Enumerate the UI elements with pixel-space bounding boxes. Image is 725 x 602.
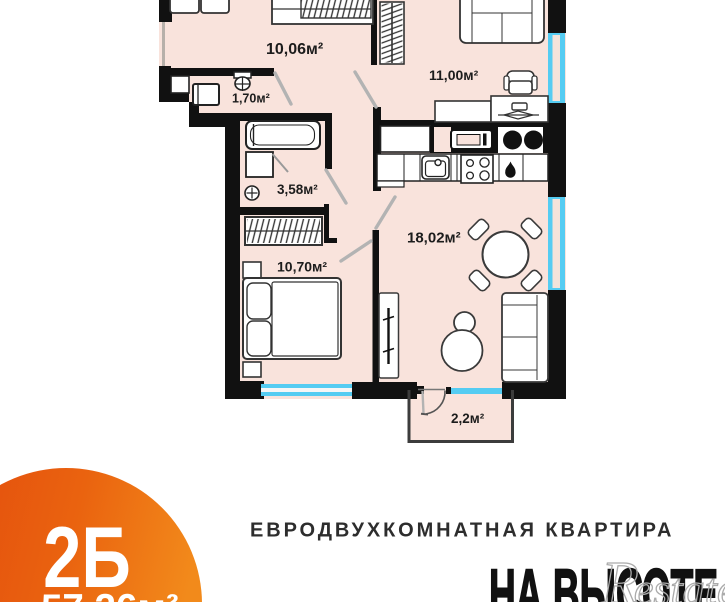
svg-text:1,70м²: 1,70м² bbox=[232, 92, 270, 106]
svg-text:11,00м²: 11,00м² bbox=[429, 67, 479, 83]
svg-text:3,58м²: 3,58м² bbox=[277, 182, 318, 197]
svg-text:2,2м²: 2,2м² bbox=[451, 411, 485, 426]
svg-text:10,70м²: 10,70м² bbox=[277, 259, 327, 275]
svg-text:ЕВРОДВУХКОМНАТНАЯ КВАРТИРА: ЕВРОДВУХКОМНАТНАЯ КВАРТИРА bbox=[250, 520, 674, 542]
svg-text:57,26м²: 57,26м² bbox=[41, 587, 179, 602]
svg-text:10,06м²: 10,06м² bbox=[266, 41, 323, 58]
svg-text:18,02м²: 18,02м² bbox=[407, 230, 461, 247]
